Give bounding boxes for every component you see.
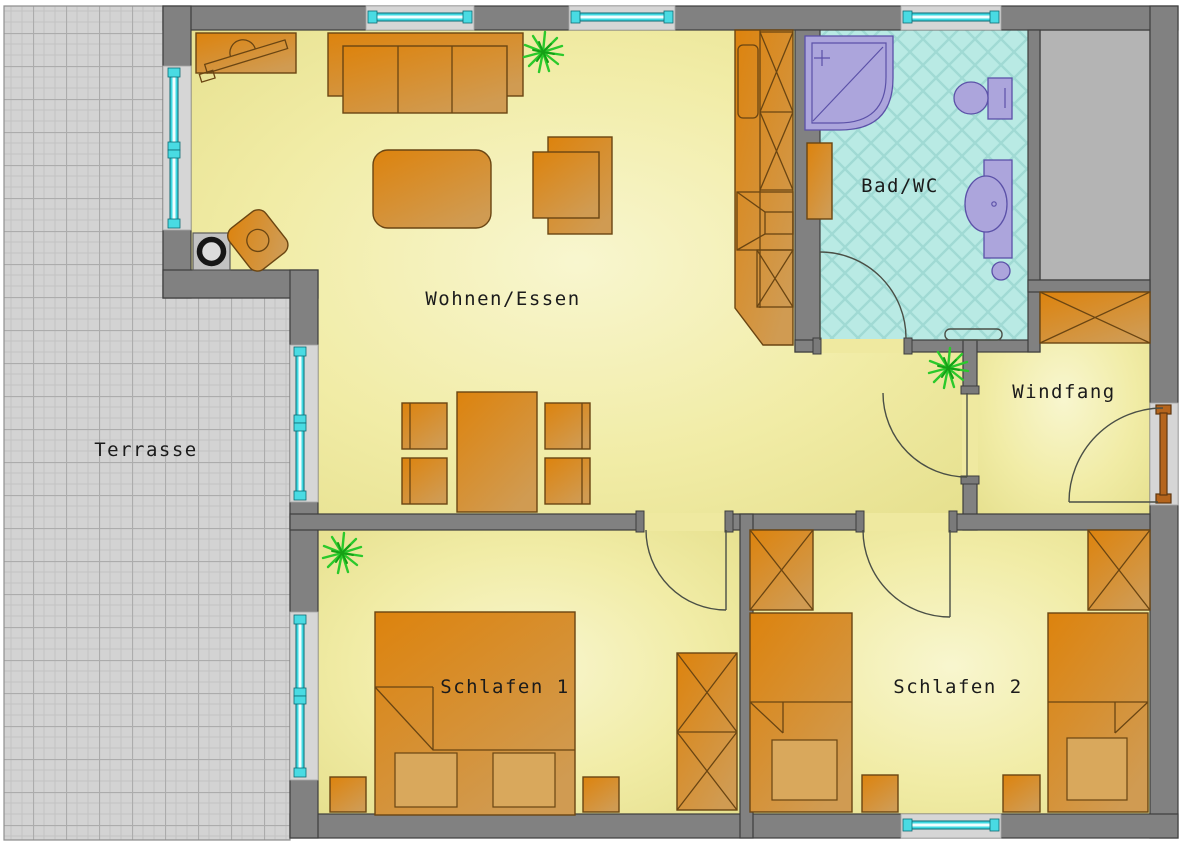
dining-table	[457, 392, 537, 512]
window-bedroom1	[290, 612, 318, 780]
window-top-living-1	[366, 6, 474, 30]
window-left-living-lower	[290, 345, 318, 502]
nightstand	[862, 775, 898, 812]
sofa	[328, 33, 523, 113]
wardrobe-bedroom2-left	[750, 530, 813, 610]
toilet-brush	[992, 262, 1010, 280]
dining-chair	[545, 403, 590, 449]
nightstand	[330, 777, 366, 812]
wardrobe-bedroom1	[677, 653, 737, 810]
room-label-schlafen1: Schlafen 1	[440, 676, 569, 698]
floor-plan: Terrasse Wohnen/Essen Bad/WC Windfang Sc…	[0, 0, 1181, 844]
floor-plan-canvas: Terrasse Wohnen/Essen Bad/WC Windfang Sc…	[0, 0, 1181, 844]
wardrobe-bedroom2-right	[1088, 530, 1150, 610]
nightstand	[1003, 775, 1040, 812]
single-bed-right	[1048, 613, 1148, 812]
radiator	[807, 143, 832, 219]
pillow	[395, 753, 457, 807]
kitchen-unit	[735, 30, 793, 345]
room-label-terrasse: Terrasse	[94, 439, 198, 461]
single-bed-left	[750, 613, 852, 812]
room-label-bad-wc: Bad/WC	[861, 175, 939, 197]
coffee-table	[373, 150, 491, 228]
windfang-wardrobe	[1040, 292, 1150, 343]
room-label-windfang: Windfang	[1012, 381, 1116, 403]
corner-shower	[805, 36, 893, 130]
room-label-wohnen-essen: Wohnen/Essen	[425, 288, 580, 310]
dining-chair	[402, 458, 447, 504]
nightstand	[583, 777, 619, 812]
pillow	[1067, 738, 1127, 800]
dining-chair	[402, 403, 447, 449]
pillow	[772, 740, 837, 800]
window-bathroom	[901, 6, 1001, 30]
window-bedroom2	[901, 814, 1001, 838]
window-top-living-2	[569, 6, 675, 30]
storage-room	[1040, 30, 1150, 280]
wood-stove	[193, 233, 230, 270]
window-left-living-upper	[163, 66, 191, 230]
dining-chair	[545, 458, 590, 504]
room-label-schlafen2: Schlafen 2	[893, 676, 1022, 698]
double-bed	[375, 612, 575, 815]
pillow	[493, 753, 555, 807]
